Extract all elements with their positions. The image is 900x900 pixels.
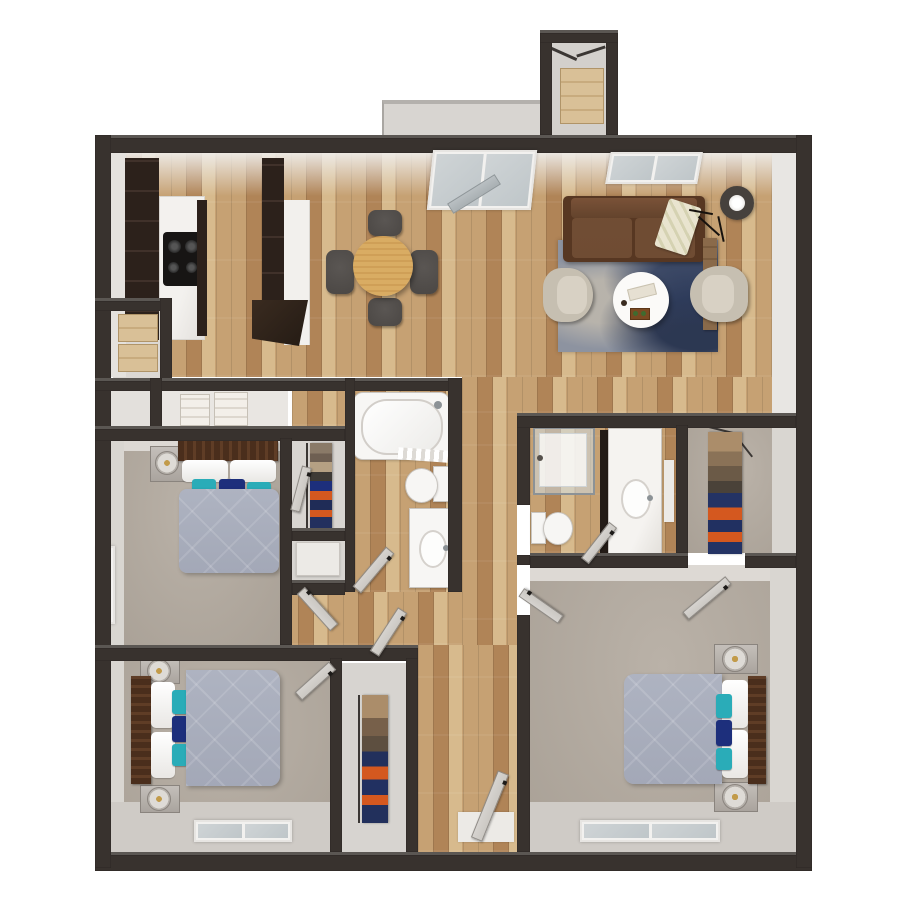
table-lamp — [722, 646, 748, 672]
wall-bedroom1-right — [280, 438, 292, 645]
hallway — [462, 413, 517, 852]
window-pane — [610, 156, 655, 180]
table-tray — [630, 308, 650, 320]
shower-tray — [539, 433, 587, 487]
dining-area — [320, 200, 450, 340]
kitchen-peninsula — [252, 158, 312, 348]
bathroom-1 — [353, 388, 448, 592]
window-pane — [584, 824, 649, 838]
toilet-bowl — [543, 512, 573, 545]
dining-chair — [410, 250, 438, 294]
table-lamp — [722, 784, 748, 810]
dining-chair — [368, 298, 402, 326]
window-pane — [245, 824, 289, 838]
dining-chair — [326, 250, 354, 294]
storage-closet — [552, 40, 606, 135]
patio-slider-door — [427, 150, 537, 210]
bed-duvet — [624, 674, 722, 784]
wall-outer-right — [796, 135, 812, 868]
wall-storage-left — [540, 30, 552, 135]
burner — [168, 240, 181, 253]
wall-corridor-east-lower — [517, 615, 530, 852]
peninsula-cabinet — [262, 158, 284, 308]
bed-headboard — [178, 441, 278, 461]
wall-master-top-east — [745, 553, 796, 568]
burner — [186, 262, 197, 273]
armchair — [543, 268, 593, 322]
sofa-seat-cushion — [572, 218, 632, 258]
wall-outer-bottom — [95, 852, 812, 871]
dining-table — [353, 236, 413, 296]
window-pane — [653, 156, 698, 180]
wall-corridor-east-stub — [517, 555, 530, 565]
sofa — [563, 196, 705, 262]
living-room — [530, 150, 797, 413]
wall-master-top-west — [530, 553, 688, 568]
linen-closet — [162, 388, 288, 426]
tray-plant — [633, 311, 638, 316]
peninsula-base — [252, 300, 308, 346]
bed-duvet — [186, 670, 280, 786]
armchair — [690, 266, 748, 322]
bed-headboard — [131, 676, 151, 784]
living-room-window — [605, 152, 703, 184]
closet-dresser — [296, 542, 340, 576]
coffee-table — [613, 272, 669, 328]
wall-storage-right — [606, 30, 618, 135]
vanity-faucet — [647, 495, 653, 501]
master-window — [580, 820, 720, 842]
armchair-seat — [702, 275, 734, 313]
floor-lamp — [720, 186, 754, 220]
table-book — [627, 283, 657, 301]
vanity — [409, 508, 453, 588]
floor-lamp-leg — [717, 216, 724, 242]
wall-bedroom2-closet-right — [406, 658, 418, 852]
burner — [168, 262, 179, 273]
bathtub — [353, 392, 450, 460]
wall-mirror — [664, 460, 674, 522]
walk-in-closet — [688, 425, 796, 553]
dining-chair — [368, 210, 402, 236]
bed-duvet — [179, 489, 279, 573]
wall-bathroom1-left — [345, 378, 355, 592]
toilet-bowl — [405, 468, 438, 503]
wall-bath2-closet-divider — [676, 425, 688, 553]
accent-pillow-teal — [716, 694, 732, 718]
shower-stall — [533, 427, 595, 495]
wall-closet1-mid — [292, 528, 345, 541]
shower-curtain — [398, 447, 449, 462]
table-lamp — [155, 451, 179, 475]
shower-head — [537, 455, 543, 461]
armchair-seat — [557, 276, 587, 314]
floor-plan-canvas — [0, 0, 900, 900]
table-cup — [621, 300, 627, 306]
balcony — [382, 100, 538, 135]
wall-pantry-right — [160, 298, 172, 388]
wall-outer-left — [95, 135, 111, 868]
bedroom-1-closet — [292, 436, 345, 528]
bed-headboard — [748, 676, 766, 784]
wall-bedroom2-closet-left — [330, 658, 342, 852]
kitchen-cabinet-front — [197, 200, 207, 336]
wall-face-linen-left — [111, 388, 150, 426]
wall-bedroom2-top — [95, 645, 418, 661]
wall-bathroom1-right — [448, 378, 462, 592]
accent-pillow-teal — [716, 748, 732, 770]
tray-plant — [641, 311, 646, 316]
bedroom-2-closet — [342, 663, 406, 852]
table-lamp — [147, 787, 171, 811]
pantry-closet — [113, 306, 160, 378]
bedroom-1 — [111, 438, 280, 645]
bathtub-faucet — [434, 401, 442, 409]
master-bedroom — [530, 565, 796, 852]
vanity — [608, 428, 662, 556]
window-pane — [652, 824, 717, 838]
bedroom2-window — [194, 820, 292, 842]
window-pane — [198, 824, 242, 838]
accent-pillow-navy — [716, 720, 732, 746]
